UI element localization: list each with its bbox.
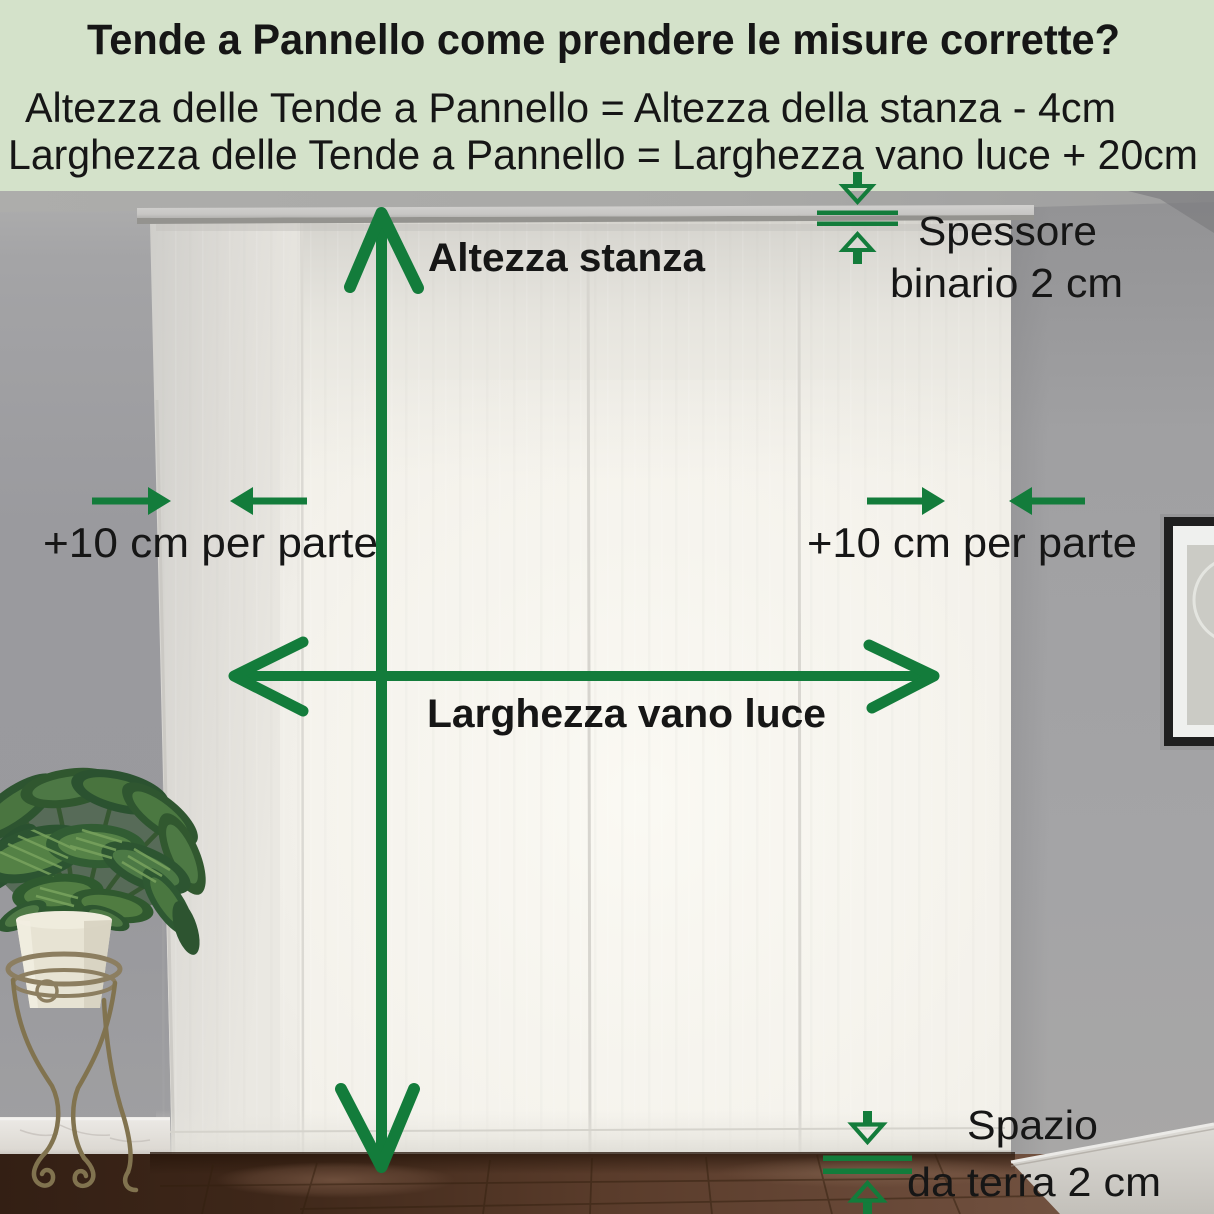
svg-text:+10 cm per parte: +10 cm per parte xyxy=(807,519,1137,566)
svg-text:+10 cm per parte: +10 cm per parte xyxy=(43,519,378,566)
svg-text:Spessore: Spessore xyxy=(918,208,1097,254)
svg-text:Larghezza delle Tende a Pannel: Larghezza delle Tende a Pannello = Largh… xyxy=(8,131,1198,178)
svg-text:Larghezza vano luce: Larghezza vano luce xyxy=(427,692,826,736)
svg-text:binario 2 cm: binario 2 cm xyxy=(890,260,1123,306)
svg-text:Altezza delle Tende a Pannello: Altezza delle Tende a Pannello = Altezza… xyxy=(25,84,1116,131)
svg-text:Tende a Pannello come prendere: Tende a Pannello come prendere le misure… xyxy=(87,16,1120,64)
svg-text:da terra 2 cm: da terra 2 cm xyxy=(907,1159,1161,1205)
svg-text:Altezza stanza: Altezza stanza xyxy=(428,236,706,280)
svg-text:Spazio: Spazio xyxy=(967,1102,1098,1148)
